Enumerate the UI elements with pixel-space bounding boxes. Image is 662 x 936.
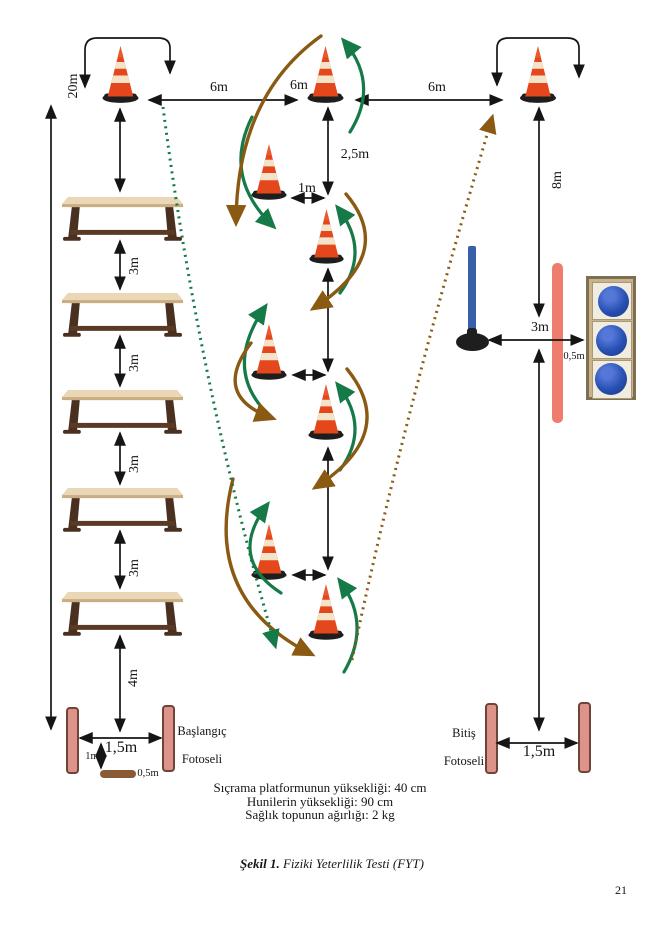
target-bar [552,263,563,423]
label-20m: 20m [67,74,81,99]
cone-top-right [514,44,562,104]
note-cone-height: Hunilerin yüksekliği: 90 cm [160,795,480,809]
start-photocell-label-line1: Başlangıç [177,724,226,738]
slalom-cone-4 [304,382,348,441]
start-photocell-left-bar [66,707,79,774]
label-3m-3: 3m [128,455,142,473]
page-number: 21 [615,883,627,898]
label-3m-right: 3m [531,321,549,335]
finish-photocell-label-line2: Fotoseli [444,754,484,768]
label-2-5m: 2,5m [341,148,369,162]
throwing-pole-base [456,333,489,351]
equipment-notes: Sıçrama platformunun yüksekliği: 40 cm H… [160,781,480,822]
label-8m: 8m [551,171,565,189]
figure-caption-title: Fiziki Yeterlilik Testi (FYT) [280,856,424,871]
label-3m-4: 3m [128,559,142,577]
start-photocell-label-line2: Fotoseli [177,752,226,766]
slalom-cone-3 [247,322,291,381]
start-photocell-right-bar [162,705,175,772]
fitness-test-figure-page: 20m 6m 6m 6m 2,5m 1m 8m 3m 3m 3m 3m 4m 3… [0,0,662,936]
slalom-cone-1 [247,142,291,201]
hurdle-3 [62,387,183,435]
slalom-cone-6 [304,582,348,641]
finish-photocell-right-bar [578,702,591,773]
cone-top-left [96,44,145,104]
finish-photocell-label-line1: Bitiş [444,726,484,740]
medicine-ball-1 [598,286,629,317]
label-4m: 4m [127,669,141,687]
note-platform-height: Sıçrama platformunun yüksekliği: 40 cm [160,781,480,795]
label-1-5m-finish: 1,5m [523,744,555,760]
slalom-cone-5 [247,522,291,581]
label-1m-top: 1m [298,182,316,196]
medicine-ball-3 [595,363,627,395]
slalom-cone-2 [305,207,348,265]
throwing-pole [468,246,476,336]
label-3m-1: 3m [128,257,142,275]
label-6m-left: 6m [210,81,228,95]
hurdle-4 [62,485,183,533]
label-0-5m-right: 0,5m [563,352,584,363]
label-3m-2: 3m [128,354,142,372]
medicine-ball-rack [586,276,636,400]
label-1-5m-start: 1,5m [105,740,137,756]
cone-top-middle [303,44,348,104]
hurdle-2 [62,290,183,338]
hurdle-5 [62,589,183,637]
figure-caption-number: Şekil 1. [240,856,280,871]
jump-platform [100,770,136,778]
start-photocell-label: Başlangıç Fotoseli [177,710,226,780]
label-0-5m-bottom: 0,5m [137,769,158,780]
finish-photocell-label: Bitiş Fotoseli [444,712,484,782]
note-ball-weight: Sağlık topunun ağırlığı: 2 kg [160,808,480,822]
brown-dotted-path [352,118,492,660]
label-6m-right: 6m [428,81,446,95]
figure-caption: Şekil 1. Fiziki Yeterlilik Testi (FYT) [240,856,424,872]
hurdle-1 [62,194,183,242]
label-6m-mid: 6m [290,79,308,93]
label-1m-bottom: 1m [85,752,98,763]
medicine-ball-2 [596,325,627,356]
finish-photocell-left-bar [485,703,498,774]
